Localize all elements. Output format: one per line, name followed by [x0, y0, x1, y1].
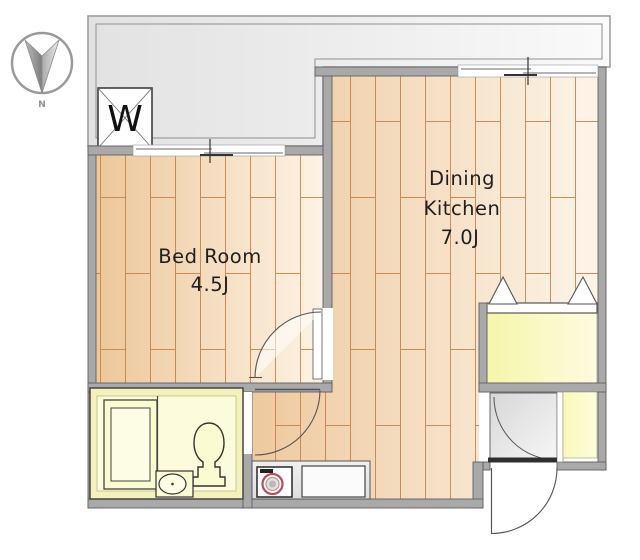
dk-label-line2: Kitchen: [424, 197, 501, 220]
wall-bottom-outer: [88, 499, 483, 508]
shoe-cabinet: [563, 392, 597, 458]
wall-closet-left: [479, 303, 487, 392]
bathtub-inner: [111, 408, 150, 481]
door-leaf: [313, 309, 322, 379]
dk-label-line1: Dining: [429, 167, 495, 190]
compass-icon: N: [12, 33, 72, 110]
compass-north-label: N: [38, 100, 46, 110]
wall-entrance-right: [557, 462, 606, 470]
washing-machine-icon: W: [98, 88, 152, 148]
wall-right-outer: [598, 67, 606, 470]
wall-entrance-left-stub: [483, 462, 490, 470]
bedroom-size-label: 4.5J: [191, 273, 230, 296]
kitchen-sink: [302, 466, 365, 497]
dk-size-label: 7.0J: [441, 226, 480, 249]
entrance-partition: [557, 392, 563, 462]
bedroom-label: Bed Room: [158, 245, 261, 268]
front-door-leaf: [488, 458, 557, 463]
toilet-icon: [193, 423, 225, 486]
wall-closet-bottom: [479, 383, 606, 392]
floor-plan-canvas: W: [0, 0, 640, 560]
washing-machine-label: W: [107, 99, 143, 140]
entrance-step: [479, 392, 490, 462]
bedroom-floor: [96, 155, 323, 383]
floor-plan: W: [0, 0, 640, 560]
stove-icon: [257, 467, 292, 497]
kitchen-counter: [252, 461, 370, 499]
front-door-swing-arc: [492, 468, 558, 534]
sink-icon: [156, 471, 193, 497]
bathroom: [90, 388, 243, 499]
